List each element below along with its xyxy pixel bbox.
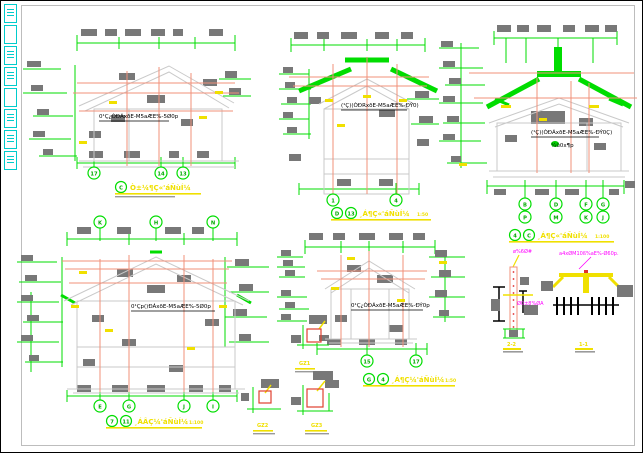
tool-glyph-icon — [7, 114, 14, 123]
magenta-note: a4xØM10ß%aE%-Ø60p. — [559, 250, 619, 257]
caption-bubble: G — [367, 378, 371, 384]
dim-lines — [23, 35, 251, 169]
caption-scale: 1:100 — [189, 420, 203, 426]
section-2-2: ø%6Ø# Ø0±8%ØA — [491, 248, 544, 353]
svg-text:I: I — [212, 405, 214, 411]
axis-bubble-row-top: K H N — [94, 216, 219, 228]
axis-bubble-row-top: B D F G — [519, 198, 609, 210]
toolbar-button-4[interactable] — [4, 67, 17, 86]
caption-bubble: 4 — [513, 234, 517, 240]
axis-label: 13 — [179, 172, 187, 178]
caption-title: ¸Á¶Ç«'áÑùÍ¼ — [359, 209, 410, 218]
caption-scale: 1:100 — [595, 234, 609, 240]
caption-bubble: 13 — [347, 212, 355, 218]
column-details: GZ1 GZ2 GZ3 — [241, 313, 353, 449]
axis-bubble-row-bottom: E G J I — [94, 400, 219, 412]
tool-glyph-icon — [7, 72, 14, 81]
caption-bubble: 7 — [110, 420, 114, 426]
tool-glyph-icon — [7, 51, 14, 60]
building-outline — [64, 257, 249, 393]
axis-label: 14 — [157, 172, 165, 178]
caption-title: ¸Á¶Ç«'áÑùÍ¼ — [537, 231, 588, 240]
drawing-caption: D 13 ¸Á¶Ç«'áÑùÍ¼ 1:50 — [331, 208, 431, 221]
section-details: ø%6Ø# Ø0±8%ØA — [491, 241, 643, 353]
toolbar-button-5[interactable] — [4, 88, 17, 107]
svg-text:P: P — [523, 216, 527, 222]
detail-label: GZ3 — [311, 423, 323, 429]
column-detail-1: GZ1 — [291, 315, 329, 372]
elevation-annotation: 0¹Ç¿ÒÐÁxðE-M5aÆE%-ÐÝ0p — [351, 302, 430, 309]
section-label: 2-2 — [507, 342, 517, 348]
elevation-annotation: (¹Ç)(ÒÐRxðE-M5aÆE%-ÐÝ0) — [341, 102, 419, 109]
svg-text:J: J — [182, 405, 185, 411]
toolbar-button-8[interactable] — [4, 151, 17, 170]
inline-note: ¼û0x¶p — [551, 141, 574, 149]
axis-bubble: 15 — [361, 355, 373, 367]
axis-label: 15 — [363, 360, 371, 366]
axis-label: 4 — [394, 199, 398, 205]
elevation-annotation: (¹Ç)(ÒÐÁxðE-M5aÆE%-ÐÝ0Ç) — [531, 129, 612, 136]
caption-scale: 1:50 — [445, 378, 456, 384]
cad-canvas[interactable]: 0¹Ç¿ÒÐÁxðE-M5aÆE%-5Ø0p 17 14 13 C Ò±¼¶Ç«… — [0, 0, 643, 453]
axis-bubble-row-bottom: P M K J — [519, 211, 609, 223]
axis-label: 17 — [412, 360, 420, 366]
drawing-caption: C Ò±¼¶Ç«'áÑùÍ¼ — [115, 182, 201, 198]
caption-bubble: C — [527, 234, 531, 240]
axis-bubble: 13 — [177, 167, 189, 179]
tool-glyph-icon — [7, 156, 14, 165]
caption-bubble: D — [335, 212, 340, 218]
elevation-annotation: 0¹Ç¿ÒÐÁxðE-M5aÆE%-5Ø0p — [99, 113, 179, 120]
caption-title: Ò±¼¶Ç«'áÑùÍ¼ — [130, 183, 191, 192]
caption-bubble: 11 — [122, 420, 130, 426]
tool-glyph-icon — [7, 135, 14, 144]
dim-lines — [439, 31, 624, 219]
detail-label: GZ2 — [257, 423, 269, 429]
elevation-b: (¹Ç)(ÒÐRxðE-M5aÆE%-ÐÝ0) 1 4 D 13 ¸Á¶Ç«'á… — [279, 29, 439, 221]
drawing-caption: 7 11 ¸ÁÂÇ¼'áÑùÍ¼ 1:100 — [106, 416, 203, 429]
axis-bubble: 4 — [390, 194, 402, 206]
column-detail-3: GZ3 — [291, 371, 339, 434]
magenta-note: Ø0±8%ØA — [517, 300, 544, 307]
axis-label: 1 — [331, 199, 335, 205]
toolbar-button-7[interactable] — [4, 130, 17, 149]
toolbar-button-6[interactable] — [4, 109, 17, 128]
elevation-c: (¹Ç)(ÒÐÁxðE-M5aÆE%-ÐÝ0Ç) ¼û0x¶p B D F G … — [439, 23, 641, 247]
side-toolbar — [4, 4, 19, 172]
elevation-annotation: 0¹Çp()ÐÁxðE-M5aÆE%-5Ø0p — [131, 303, 211, 310]
svg-text:G: G — [127, 405, 131, 411]
svg-text:J: J — [601, 216, 604, 222]
axis-label: 17 — [90, 172, 98, 178]
dim-lines — [17, 228, 269, 402]
axis-bubble: 17 — [88, 167, 100, 179]
axis-bubble: 17 — [410, 355, 422, 367]
caption-bubble: 4 — [381, 378, 385, 384]
svg-text:F: F — [584, 203, 588, 209]
section-1-1: a4xØM10ß%aE%-Ø60p. 1-1 — [541, 250, 633, 353]
elevation-a: 0¹Ç¿ÒÐÁxðE-M5aÆE%-5Ø0p 17 14 13 C Ò±¼¶Ç«… — [19, 21, 251, 199]
tool-glyph-icon — [7, 9, 14, 18]
note-text: ¼û0x¶p — [551, 142, 574, 149]
drawing-caption: G 4 ¸Á¶Ç¼'áÑùÍ¼ 1:50 — [363, 374, 456, 387]
svg-text:N: N — [211, 221, 215, 227]
dim-text-blocks — [441, 25, 635, 195]
caption-title: ¸ÁÂÇ¼'áÑùÍ¼ — [134, 417, 188, 426]
toolbar-button-2[interactable] — [4, 25, 17, 44]
section-label: 1-1 — [579, 342, 589, 348]
axis-bubble: 14 — [155, 167, 167, 179]
detail-label: GZ1 — [299, 361, 311, 367]
svg-text:H: H — [154, 221, 158, 227]
axis-bubble: 1 — [327, 194, 339, 206]
svg-text:B: B — [523, 203, 527, 209]
caption-bubble: C — [119, 186, 123, 192]
svg-text:G: G — [601, 203, 605, 209]
svg-text:D: D — [554, 203, 559, 209]
toolbar-button-1[interactable] — [4, 4, 17, 23]
magenta-note: ø%6Ø# — [513, 248, 532, 255]
toolbar-button-3[interactable] — [4, 46, 17, 65]
caption-scale: 1:50 — [417, 212, 428, 218]
caption-title: ¸Á¶Ç¼'áÑùÍ¼ — [391, 375, 444, 384]
svg-text:E: E — [98, 405, 102, 411]
elevation-d: K H N — [17, 197, 269, 433]
svg-text:M: M — [553, 216, 558, 222]
column-detail-2: GZ2 — [241, 379, 281, 434]
